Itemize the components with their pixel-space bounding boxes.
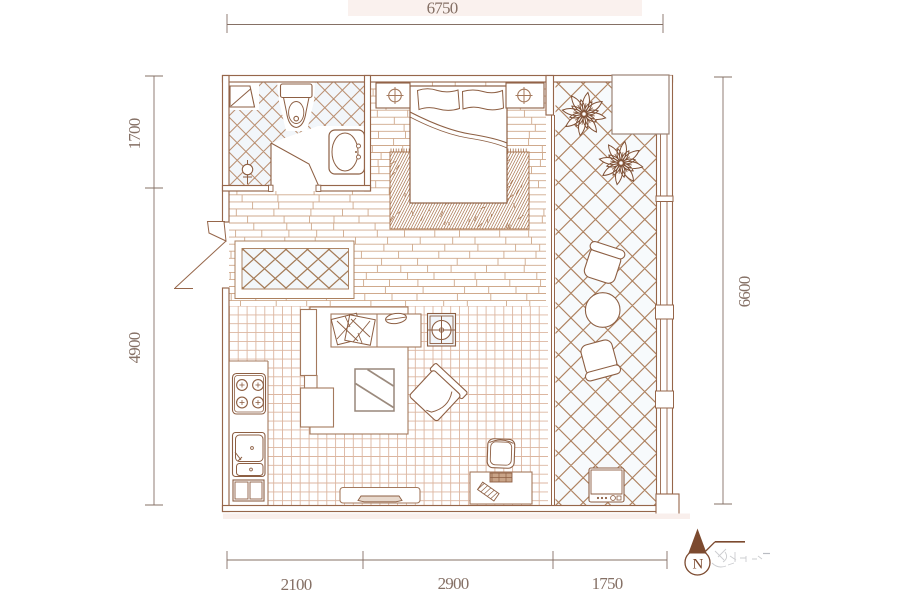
svg-text:6750: 6750	[427, 0, 458, 18]
svg-text:6600: 6600	[735, 276, 754, 307]
svg-text:N: N	[692, 557, 703, 573]
svg-text:4900: 4900	[125, 332, 144, 363]
svg-text:2900: 2900	[438, 574, 469, 593]
svg-text:2100: 2100	[281, 575, 312, 594]
svg-text:1700: 1700	[125, 118, 144, 149]
svg-text:1750: 1750	[592, 574, 623, 593]
